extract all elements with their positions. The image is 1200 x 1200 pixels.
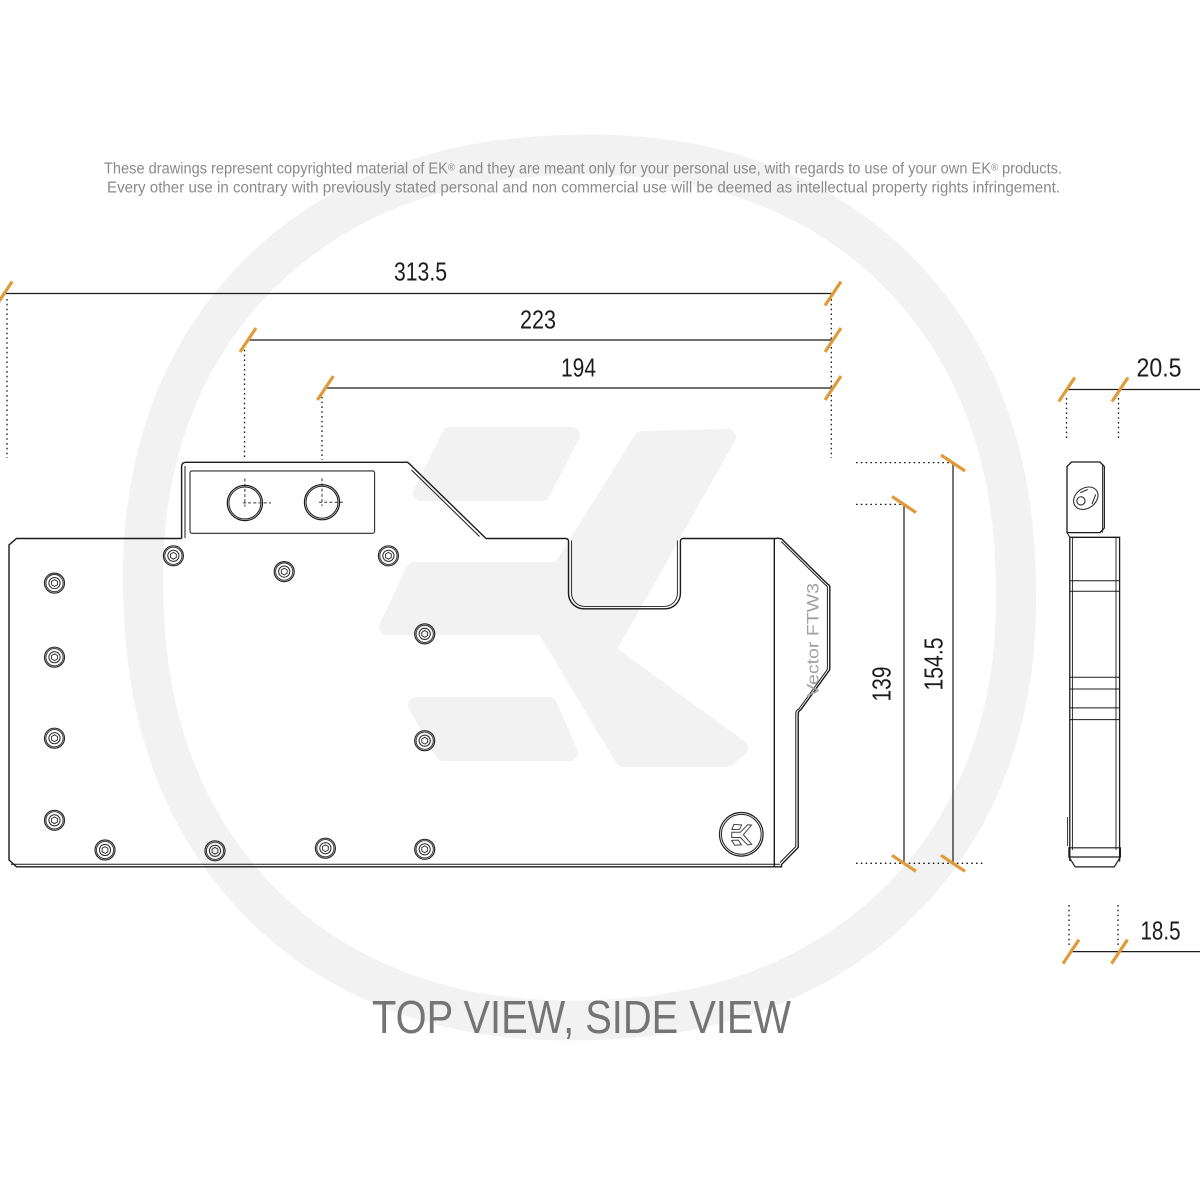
svg-text:139: 139 [869,667,897,702]
svg-text:Vector FTW3: Vector FTW3 [804,583,823,697]
svg-text:Every other use in contrary wi: Every other use in contrary with previou… [107,180,1060,197]
svg-text:18.5: 18.5 [1141,918,1181,946]
svg-text:313.5: 313.5 [394,258,447,286]
svg-text:20.5: 20.5 [1137,355,1182,383]
svg-text:TOP VIEW, SIDE VIEW: TOP VIEW, SIDE VIEW [372,991,792,1043]
svg-text:154.5: 154.5 [920,638,948,691]
svg-text:These drawings represent copyr: These drawings represent copyrighted mat… [104,161,1062,178]
svg-text:223: 223 [520,307,556,335]
svg-text:194: 194 [561,354,596,382]
